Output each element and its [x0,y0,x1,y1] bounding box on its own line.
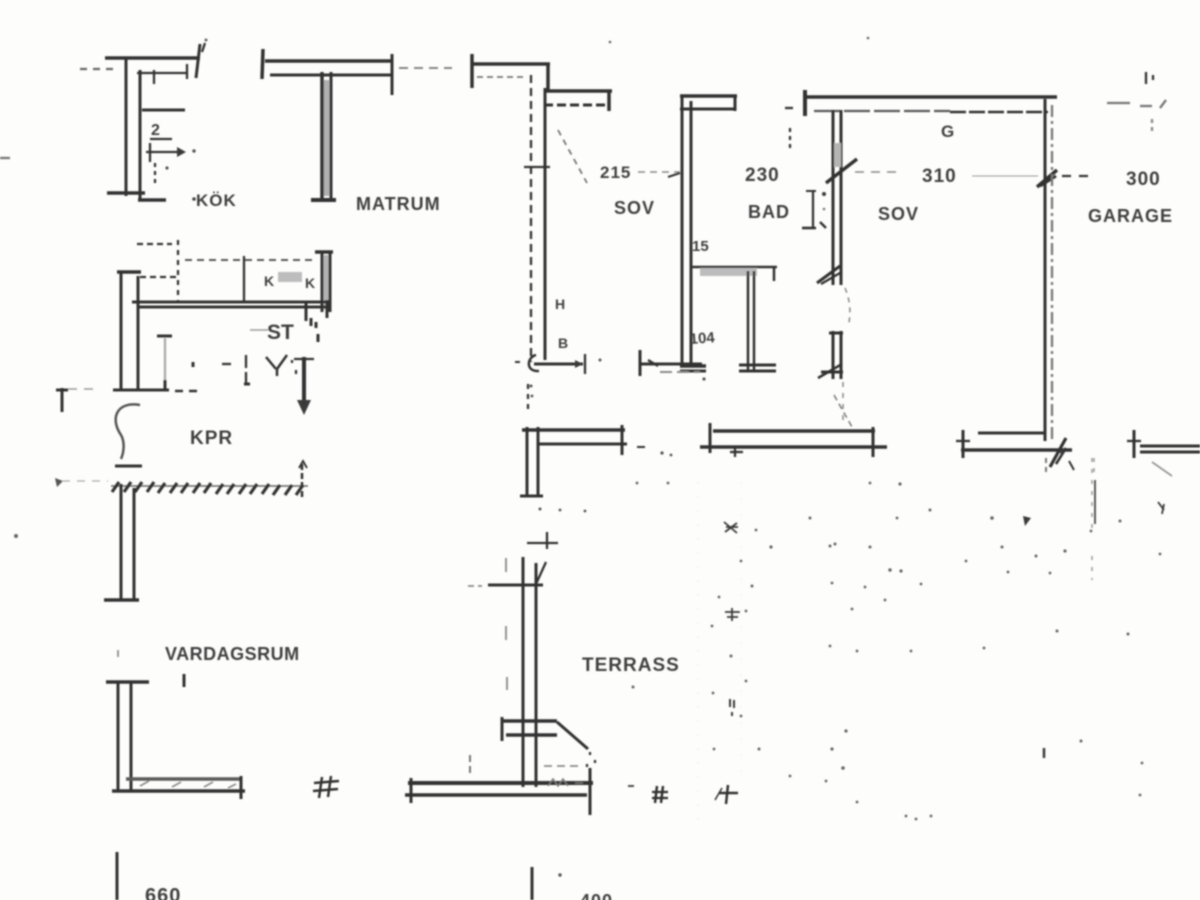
svg-text:230: 230 [745,165,780,186]
svg-text:SOV: SOV [614,198,655,218]
svg-text:SOV: SOV [878,204,919,224]
svg-text:MATRUM: MATRUM [356,194,441,214]
svg-text:2: 2 [151,122,160,139]
svg-text:GARAGE: GARAGE [1088,206,1173,226]
svg-text:400: 400 [580,891,613,900]
svg-text:K: K [305,275,315,291]
svg-text:660: 660 [145,885,181,900]
svg-text:TERRASS: TERRASS [582,655,680,676]
svg-text:310: 310 [922,166,957,187]
svg-text:KPR: KPR [190,428,233,449]
svg-text:K: K [264,273,274,289]
svg-text:BAD: BAD [748,202,790,222]
svg-text:300: 300 [1126,169,1161,190]
svg-text:KÖK: KÖK [196,191,237,210]
svg-text:H: H [555,296,565,312]
svg-text:VARDAGSRUM: VARDAGSRUM [165,644,300,664]
svg-text:215: 215 [600,163,631,182]
svg-text:104: 104 [689,329,716,348]
svg-text:G: G [941,122,954,141]
svg-text:ST: ST [267,321,294,344]
svg-text:B: B [558,335,568,351]
svg-text:15: 15 [692,238,709,255]
